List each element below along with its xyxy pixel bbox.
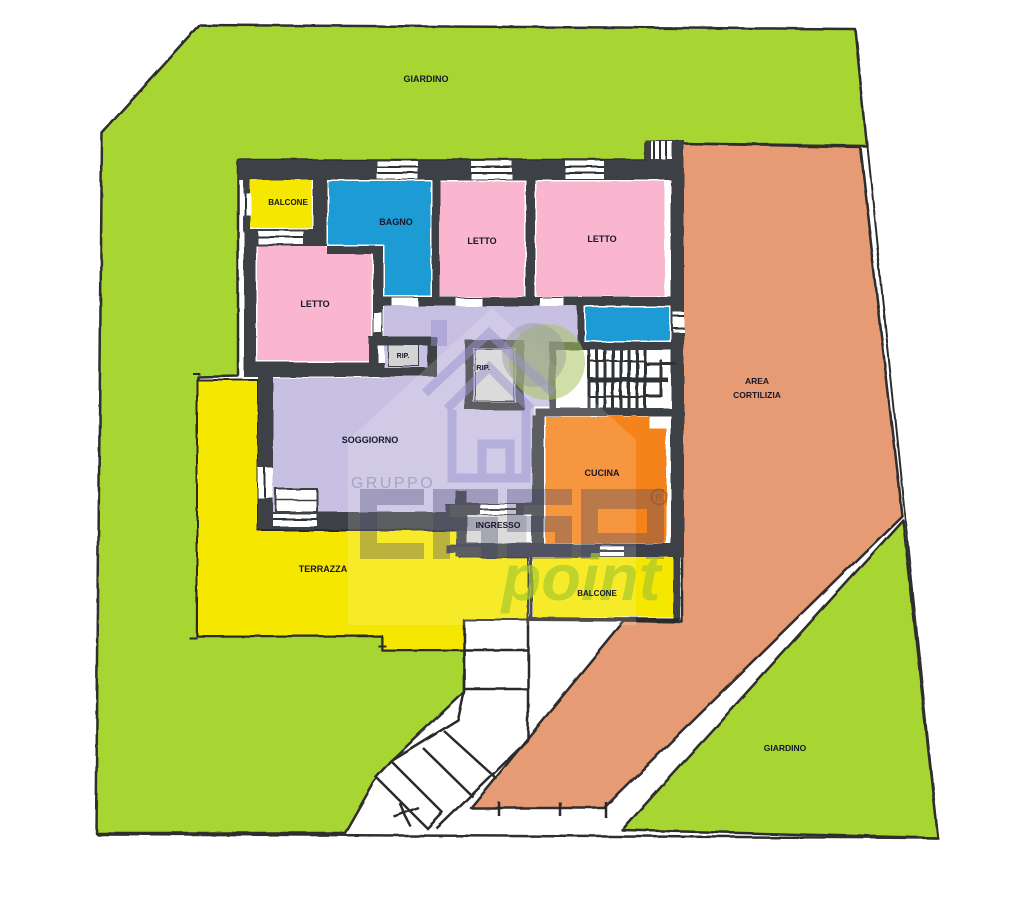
svg-text:AREA: AREA xyxy=(745,376,769,386)
svg-text:CUCINA: CUCINA xyxy=(585,468,620,478)
svg-text:TERRAZZA: TERRAZZA xyxy=(299,564,348,574)
svg-text:GIARDINO: GIARDINO xyxy=(404,74,449,84)
svg-text:BAGNO: BAGNO xyxy=(379,217,413,227)
svg-text:SOGGIORNO: SOGGIORNO xyxy=(342,435,399,445)
svg-text:GIARDINO: GIARDINO xyxy=(764,743,807,753)
svg-text:INGRESSO: INGRESSO xyxy=(476,520,521,530)
svg-text:LETTO: LETTO xyxy=(300,299,329,309)
svg-text:BALCONE: BALCONE xyxy=(268,198,308,207)
svg-text:RIP.: RIP. xyxy=(476,363,490,372)
svg-text:CORTILIZIA: CORTILIZIA xyxy=(733,390,781,400)
svg-text:R: R xyxy=(655,493,662,504)
svg-text:LETTO: LETTO xyxy=(587,234,616,244)
svg-text:RIP.: RIP. xyxy=(397,353,410,360)
svg-text:BALCONE: BALCONE xyxy=(577,589,617,598)
svg-text:point: point xyxy=(500,541,663,614)
svg-text:LETTO: LETTO xyxy=(467,236,496,246)
